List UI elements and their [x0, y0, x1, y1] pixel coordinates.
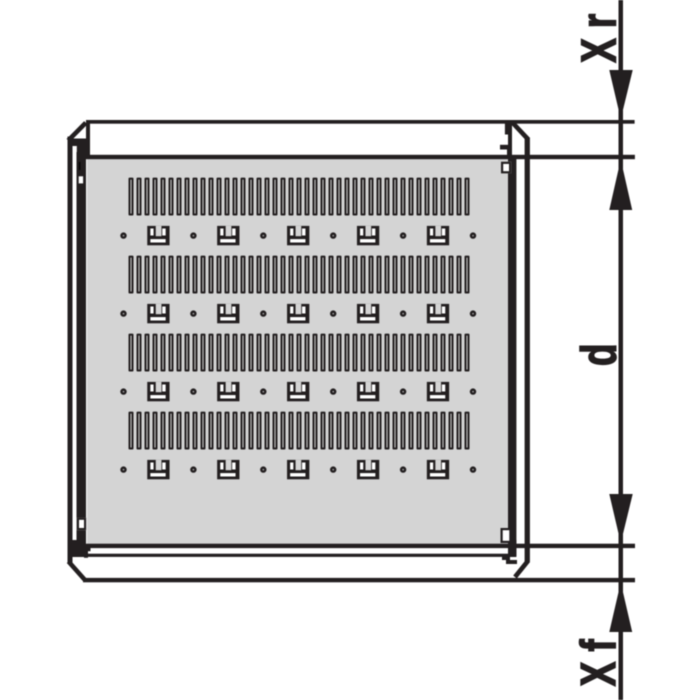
svg-text:X f: X f [572, 639, 626, 686]
svg-text:X r: X r [573, 14, 627, 63]
svg-text:d: d [573, 344, 627, 366]
